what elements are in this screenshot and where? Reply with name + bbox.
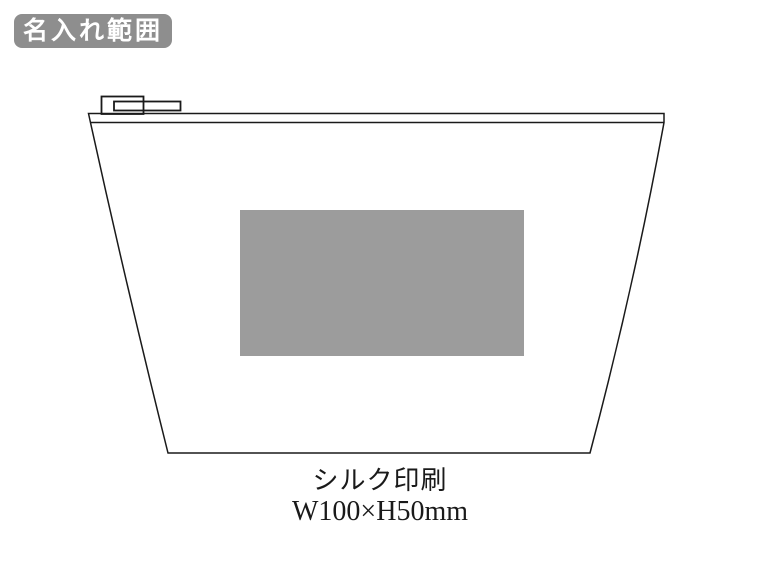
print-area-rect	[240, 210, 524, 356]
imprint-area-diagram: 名入れ範囲 シルク印刷 W100×H50mm	[0, 0, 760, 570]
print-method-label: シルク印刷	[0, 466, 760, 496]
print-size-label: W100×H50mm	[0, 497, 760, 527]
caption: シルク印刷 W100×H50mm	[0, 466, 760, 527]
zipper-pull-tab	[114, 102, 181, 111]
